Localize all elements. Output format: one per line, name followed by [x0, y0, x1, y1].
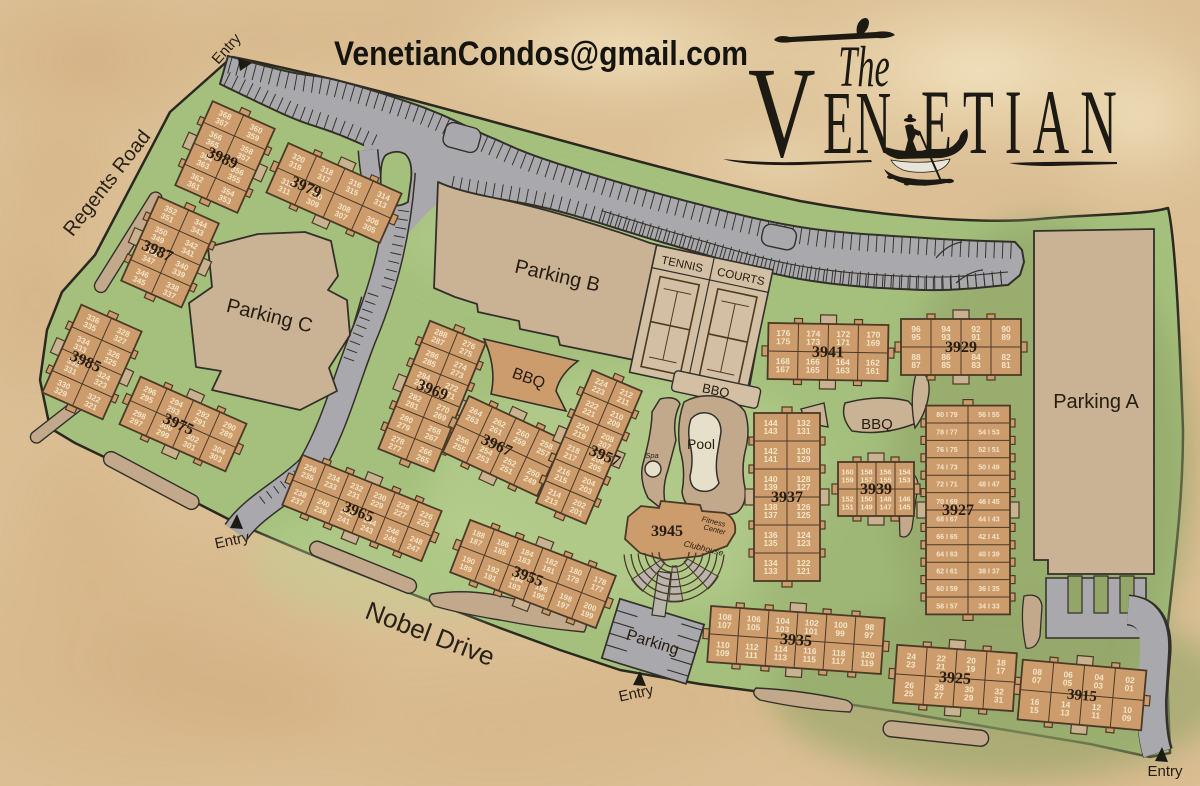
svg-text:115: 115: [802, 654, 817, 665]
svg-text:56 I 55: 56 I 55: [978, 412, 1000, 419]
svg-text:23: 23: [906, 659, 916, 670]
svg-text:143: 143: [764, 426, 778, 436]
svg-text:147: 147: [879, 503, 891, 512]
svg-text:161: 161: [866, 366, 880, 376]
svg-text:3929: 3929: [945, 339, 977, 356]
svg-text:109: 109: [715, 647, 730, 658]
svg-text:11: 11: [1091, 710, 1101, 721]
svg-text:3915: 3915: [1066, 687, 1097, 706]
svg-text:129: 129: [797, 454, 811, 464]
svg-text:165: 165: [806, 365, 820, 375]
svg-text:105: 105: [746, 622, 761, 633]
svg-text:31: 31: [994, 694, 1004, 705]
svg-text:Spa: Spa: [645, 451, 658, 460]
svg-text:3937: 3937: [771, 489, 803, 506]
svg-text:54 I 53: 54 I 53: [978, 430, 1000, 437]
svg-text:25: 25: [904, 688, 914, 699]
svg-text:149: 149: [860, 503, 872, 512]
svg-text:3935: 3935: [779, 631, 812, 650]
svg-text:95: 95: [911, 332, 921, 342]
svg-text:131: 131: [797, 426, 811, 436]
svg-text:167: 167: [776, 364, 790, 374]
svg-text:09: 09: [1122, 713, 1132, 724]
svg-text:151: 151: [841, 503, 853, 512]
svg-text:80 I 79: 80 I 79: [936, 412, 958, 419]
svg-text:137: 137: [764, 510, 778, 520]
svg-text:3945: 3945: [651, 523, 683, 540]
svg-text:159: 159: [841, 476, 853, 485]
svg-text:Entry: Entry: [1147, 763, 1183, 780]
svg-text:113: 113: [773, 651, 788, 662]
svg-text:40 I 39: 40 I 39: [978, 551, 1000, 558]
svg-text:BBQ: BBQ: [861, 416, 893, 433]
svg-text:117: 117: [831, 656, 846, 667]
svg-text:34 I 33: 34 I 33: [978, 604, 1000, 611]
svg-text:62 I 61: 62 I 61: [936, 569, 958, 576]
svg-text:50 I 49: 50 I 49: [978, 464, 1000, 471]
svg-text:76 I 75: 76 I 75: [936, 447, 958, 454]
svg-text:99: 99: [835, 628, 845, 639]
svg-text:153: 153: [898, 476, 910, 485]
svg-text:VenetianCondos@gmail.com: VenetianCondos@gmail.com: [334, 35, 748, 73]
svg-text:3927: 3927: [942, 502, 974, 519]
svg-text:Parking A: Parking A: [1053, 391, 1139, 413]
svg-text:58 I 57: 58 I 57: [936, 604, 958, 611]
svg-text:74 I 73: 74 I 73: [936, 464, 958, 471]
svg-text:52 I 51: 52 I 51: [978, 447, 1000, 454]
svg-text:46 I 45: 46 I 45: [978, 499, 1000, 506]
svg-text:97: 97: [864, 630, 874, 641]
svg-text:Pool: Pool: [687, 436, 715, 452]
svg-text:ETIAN: ETIAN: [921, 72, 1128, 174]
svg-text:3939: 3939: [860, 481, 892, 498]
svg-text:125: 125: [797, 510, 811, 520]
svg-text:135: 135: [764, 538, 778, 548]
svg-text:42 I 41: 42 I 41: [978, 534, 1000, 541]
svg-text:27: 27: [934, 690, 944, 701]
svg-text:107: 107: [717, 619, 732, 630]
svg-text:141: 141: [764, 454, 778, 464]
svg-text:119: 119: [860, 658, 875, 669]
svg-text:121: 121: [797, 566, 811, 576]
svg-text:13: 13: [1060, 707, 1070, 718]
svg-text:01: 01: [1124, 683, 1134, 694]
svg-text:3925: 3925: [938, 669, 971, 688]
svg-text:48 I 47: 48 I 47: [978, 482, 1000, 489]
svg-text:38 I 37: 38 I 37: [978, 569, 1000, 576]
svg-text:36 I 35: 36 I 35: [978, 586, 1000, 593]
svg-text:123: 123: [797, 538, 811, 548]
svg-text:163: 163: [836, 365, 850, 375]
svg-text:15: 15: [1029, 704, 1039, 715]
svg-text:3941: 3941: [812, 344, 844, 362]
svg-text:87: 87: [911, 360, 921, 370]
svg-text:60 I 59: 60 I 59: [936, 586, 958, 593]
svg-text:44 I 43: 44 I 43: [978, 517, 1000, 524]
svg-text:EN: EN: [823, 72, 893, 172]
svg-text:07: 07: [1032, 675, 1042, 686]
svg-text:81: 81: [1001, 360, 1011, 370]
svg-text:83: 83: [971, 360, 981, 370]
svg-text:78 I 77: 78 I 77: [936, 430, 958, 437]
svg-text:17: 17: [996, 665, 1006, 676]
svg-text:133: 133: [764, 566, 778, 576]
svg-text:66 I 65: 66 I 65: [936, 534, 958, 541]
svg-text:72 I 71: 72 I 71: [936, 482, 958, 489]
svg-text:175: 175: [776, 336, 790, 346]
svg-text:29: 29: [964, 692, 974, 703]
svg-text:111: 111: [744, 649, 758, 660]
svg-text:85: 85: [941, 360, 951, 370]
svg-text:145: 145: [898, 503, 910, 512]
svg-text:64 I 63: 64 I 63: [936, 551, 958, 558]
svg-text:89: 89: [1001, 332, 1011, 342]
svg-text:169: 169: [866, 338, 880, 348]
